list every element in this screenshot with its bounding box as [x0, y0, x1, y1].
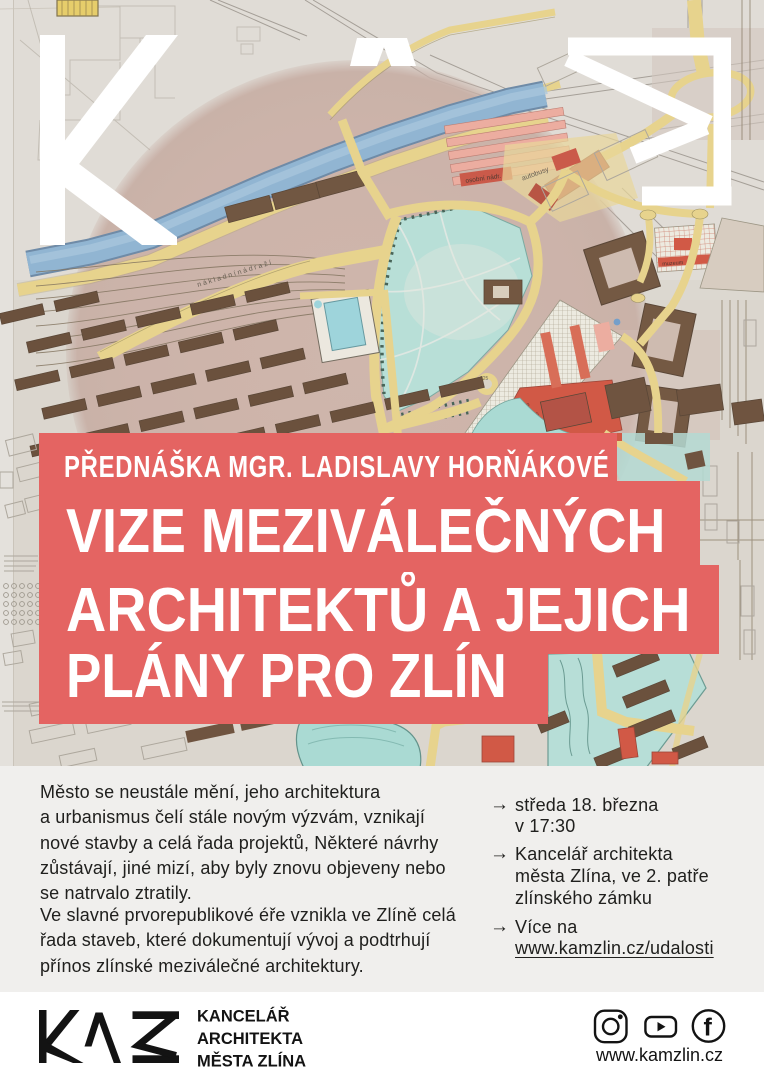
- svg-text:MĚSTA ZLÍNA: MĚSTA ZLÍNA: [197, 1051, 306, 1070]
- svg-text:ARCHITEKTA: ARCHITEKTA: [197, 1030, 303, 1048]
- svg-text:KANCELÁŘ: KANCELÁŘ: [197, 1007, 290, 1026]
- svg-text:f: f: [704, 1014, 713, 1042]
